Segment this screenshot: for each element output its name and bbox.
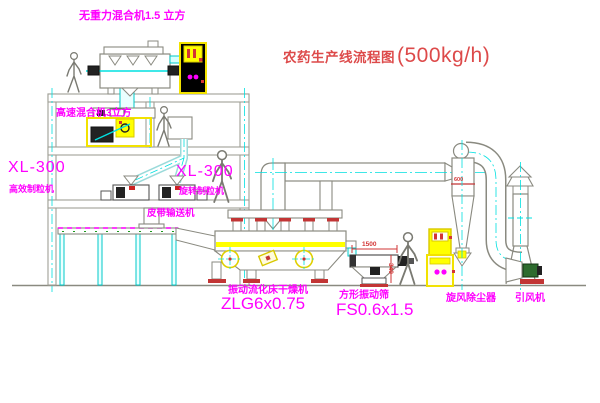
label-dryer-model: ZLG6x0.75 <box>221 295 305 312</box>
control-cabinet-top <box>180 43 206 93</box>
label-belt-conveyor: 皮带输送机 <box>147 209 195 219</box>
label-granulator-left-name: 高效制粒机 <box>9 185 54 194</box>
person-figure-top-floor <box>67 53 81 92</box>
label-granulator-right-name: 旋转制粒机 <box>179 187 224 196</box>
label-top-mixer: 无重力混合机1.5 立方 <box>79 11 185 22</box>
label-granulator-left-model: XL-300 <box>8 160 66 176</box>
dimension-cyclone-diameter: 600 <box>454 178 463 184</box>
title-text: 农药生产线流程图 <box>283 46 395 66</box>
label-granulator-right-model: XL-300 <box>176 164 234 180</box>
title-capacity: (500kg/h) <box>397 44 490 68</box>
fluid-bed-dryer <box>208 210 356 283</box>
label-mid-mixer: 高速混合机3立方 <box>56 109 132 119</box>
label-sieve-model: FS0.6x1.5 <box>336 301 414 318</box>
belt-conveyor <box>58 228 215 285</box>
induced-draft-fan <box>506 258 544 284</box>
label-cyclone: 旋风除尘器 <box>446 294 496 304</box>
control-cabinet-ground <box>427 229 455 286</box>
dimension-sieve-height: 340 <box>387 263 394 274</box>
label-fan: 引风机 <box>515 294 545 304</box>
cad-process-flow-diagram: 农药生产线流程图 (500kg/h) 无重力混合机1.5 立方 高速混合机3立方… <box>0 0 600 403</box>
diagram-title: 农药生产线流程图 (500kg/h) <box>283 44 490 68</box>
dimension-sieve-length: 1500 <box>362 242 376 249</box>
